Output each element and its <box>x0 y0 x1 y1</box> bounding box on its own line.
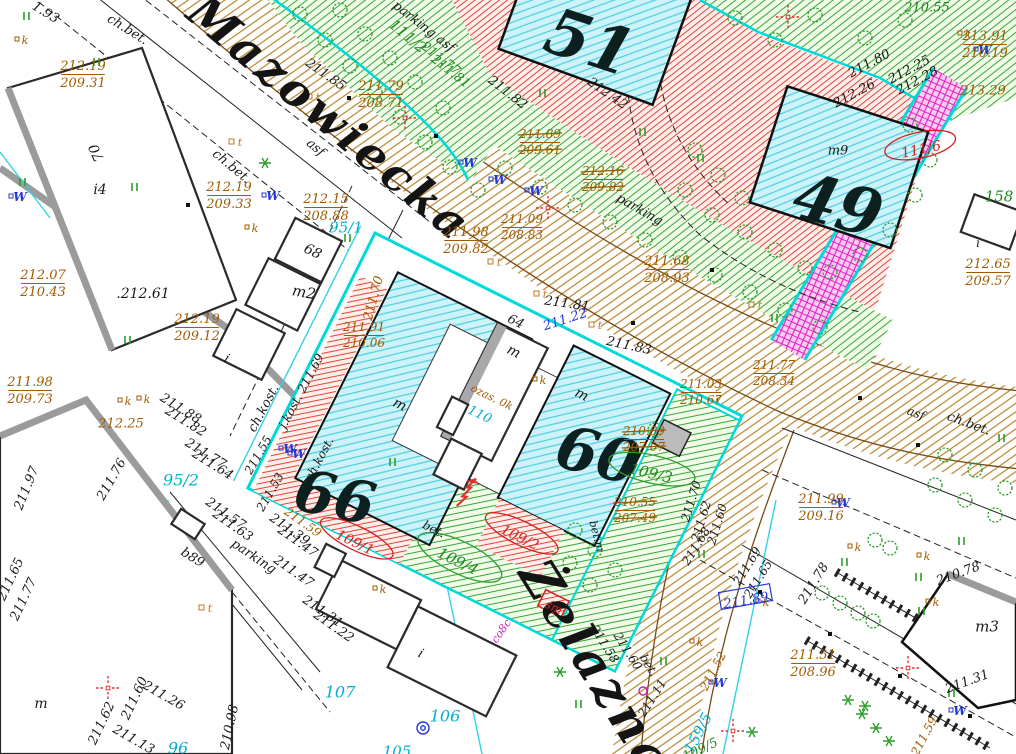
lamp-marker-icon: t <box>229 136 243 149</box>
lamp-marker-icon: t <box>488 256 502 269</box>
map-label: 212.65209.57 <box>964 257 1011 289</box>
svg-text:211.98: 211.98 <box>6 375 53 390</box>
map-label: m9 <box>828 144 849 159</box>
svg-text:213.29: 213.29 <box>959 84 1006 99</box>
survey-point <box>631 321 635 325</box>
map-label: 211.98209.73 <box>6 375 53 407</box>
svg-text:t: t <box>598 319 603 332</box>
svg-text:211.99: 211.99 <box>797 492 844 507</box>
svg-text:212.19: 212.19 <box>173 312 220 327</box>
svg-text:210.06: 210.06 <box>342 336 385 350</box>
map-label: 96 <box>168 739 188 754</box>
water-marker-icon: W <box>9 190 28 204</box>
svg-text:208.34: 208.34 <box>752 374 795 388</box>
svg-text:m9: m9 <box>828 144 849 159</box>
k-marker-icon: k <box>118 395 132 408</box>
svg-text:95/2: 95/2 <box>163 471 199 490</box>
svg-text:212.19: 212.19 <box>59 59 106 74</box>
survey-point <box>916 443 920 447</box>
svg-text:212.25: 212.25 <box>97 417 144 432</box>
map-label: 105 <box>383 742 412 754</box>
survey-point <box>968 714 972 718</box>
svg-text:208.96: 208.96 <box>789 665 836 680</box>
svg-text:k: k <box>252 222 259 235</box>
svg-text:W: W <box>493 173 508 187</box>
conifer-icon <box>842 695 854 705</box>
grass-icon <box>576 700 581 708</box>
tree-icon <box>928 478 942 492</box>
survey-point <box>434 134 438 138</box>
base-map: kkkkkkkkkkkktttttttWWWWWWWWWWW Mazowieck… <box>0 0 1016 754</box>
map-label: 211.03210.67 <box>679 377 722 407</box>
benchmark-icon <box>417 722 429 734</box>
svg-text:209.12: 209.12 <box>173 329 220 344</box>
map-label: 211.98209.82 <box>442 225 489 257</box>
map-label: i4 <box>93 182 106 198</box>
map-label: .212.61 <box>116 286 169 302</box>
map-label: 212.15208.88 <box>302 192 349 224</box>
map-label: 210.89207.07 <box>622 424 666 454</box>
svg-text:211.98: 211.98 <box>442 225 489 240</box>
svg-text:209.57: 209.57 <box>964 274 1011 289</box>
svg-text:W: W <box>266 189 281 203</box>
svg-text:211.68: 211.68 <box>643 254 690 269</box>
svg-text:211.59: 211.59 <box>908 714 941 754</box>
map-label: 107 <box>325 683 356 702</box>
map-label: 212.19209.31 <box>59 59 106 91</box>
svg-text:k: k <box>540 374 547 387</box>
svg-text:W: W <box>13 190 28 204</box>
map-label: co8c <box>489 617 515 646</box>
svg-text:210.67: 210.67 <box>679 393 722 407</box>
svg-text:.212.61: .212.61 <box>116 286 169 302</box>
k-marker-icon: k <box>137 393 151 406</box>
svg-text:210.19: 210.19 <box>961 46 1008 61</box>
svg-text:W: W <box>529 184 544 198</box>
survey-point <box>828 632 832 636</box>
conifer-icon <box>870 723 882 733</box>
map-label: 212.19209.33 <box>205 180 252 212</box>
svg-text:k: k <box>924 550 931 563</box>
svg-text:107: 107 <box>325 683 356 702</box>
map-label: 212.16209.82 <box>581 164 625 194</box>
conifer-icon <box>746 727 758 737</box>
k-marker-icon: k <box>848 541 862 554</box>
map-label: i <box>976 236 980 250</box>
tree-icon <box>851 606 865 620</box>
k-marker-icon: k <box>15 34 29 47</box>
svg-text:k: k <box>144 393 151 406</box>
svg-text:210.55: 210.55 <box>903 1 950 16</box>
map-label: 106 <box>430 707 461 726</box>
svg-text:208.93: 208.93 <box>643 271 690 286</box>
svg-text:209.33: 209.33 <box>205 197 252 212</box>
svg-text:t: t <box>758 299 763 312</box>
survey-point <box>710 268 714 272</box>
svg-text:105: 105 <box>383 742 412 754</box>
tree-icon <box>833 596 847 610</box>
svg-text:211.78: 211.78 <box>795 560 832 607</box>
svg-text:209.31: 209.31 <box>59 76 106 91</box>
tree-icon <box>868 533 882 547</box>
svg-text:k: k <box>380 583 387 596</box>
map-label: 212.19209.12 <box>173 312 220 344</box>
map-label: 211.51208.96 <box>789 648 836 680</box>
svg-text:W: W <box>463 156 478 170</box>
conifer-icon <box>883 736 895 746</box>
map-label: 158 <box>985 187 1014 205</box>
survey-cross-icon <box>721 719 745 743</box>
map-label: 211.59 <box>908 714 941 754</box>
survey-point <box>898 674 902 678</box>
svg-text:211.79: 211.79 <box>357 79 404 94</box>
svg-text:co8c: co8c <box>489 617 515 646</box>
water-marker-icon: W <box>262 189 281 203</box>
map-label: 212.25 <box>97 417 144 432</box>
tree-icon <box>998 481 1012 495</box>
svg-text:211.09: 211.09 <box>500 212 543 226</box>
svg-text:k: k <box>22 34 29 47</box>
svg-text:96: 96 <box>168 739 188 754</box>
svg-text:208.83: 208.83 <box>500 228 543 242</box>
conifer-icon <box>259 158 271 168</box>
svg-text:211.77: 211.77 <box>752 358 795 372</box>
svg-text:m3: m3 <box>975 617 999 635</box>
svg-text:t: t <box>238 136 243 149</box>
svg-text:k: k <box>855 541 862 554</box>
svg-text:W: W <box>953 704 968 718</box>
k-marker-icon: k <box>245 222 259 235</box>
svg-text:t: t <box>497 256 502 269</box>
svg-text:209.73: 209.73 <box>6 392 53 407</box>
map-label: 213.91210.19 <box>961 29 1008 61</box>
svg-text:k: k <box>125 395 132 408</box>
map-label: 210.55207.49 <box>613 495 657 525</box>
map-label: m <box>34 696 47 712</box>
map-label: 211.89209.61 <box>518 127 562 157</box>
map-label: m3 <box>975 617 999 635</box>
k-marker-icon: k <box>917 550 931 563</box>
svg-text:t: t <box>208 602 213 615</box>
map-label: 211.68208.93 <box>643 254 690 286</box>
svg-text:i4: i4 <box>93 182 106 198</box>
svg-text:212.07: 212.07 <box>19 268 66 283</box>
tree-icon <box>883 541 897 555</box>
map-label: ch.bet. <box>104 12 150 49</box>
grass-icon <box>842 558 847 566</box>
svg-text:158: 158 <box>985 187 1014 205</box>
svg-text:211.91: 211.91 <box>342 320 385 334</box>
grass-icon <box>24 12 29 20</box>
svg-text:k: k <box>933 596 940 609</box>
grass-icon <box>959 537 964 545</box>
svg-text:212.15: 212.15 <box>302 192 349 207</box>
map-label: 95/2 <box>163 471 199 490</box>
svg-text:211.51: 211.51 <box>789 648 836 663</box>
svg-text:213.91: 213.91 <box>961 29 1008 44</box>
svg-text:k: k <box>697 636 704 649</box>
svg-text:212.65: 212.65 <box>964 257 1011 272</box>
map-label: 211.09208.83 <box>500 212 543 242</box>
map-label: 211.79208.71 <box>357 79 404 111</box>
grass-icon <box>916 573 921 581</box>
svg-text:212.19: 212.19 <box>205 180 252 195</box>
map-label: 210.55 <box>903 1 950 16</box>
map-label: 1.93 <box>29 0 62 27</box>
svg-text:106: 106 <box>430 707 461 726</box>
svg-text:ch.bet.: ch.bet. <box>104 12 150 49</box>
svg-text:m: m <box>34 696 47 712</box>
survey-point <box>858 396 862 400</box>
map-label: 211.99209.16 <box>797 492 844 524</box>
svg-text:208.88: 208.88 <box>302 209 349 224</box>
svg-text:211.03: 211.03 <box>679 377 722 391</box>
svg-text:1.93: 1.93 <box>29 0 62 27</box>
survey-point <box>186 203 190 207</box>
map-label: 213.29 <box>959 84 1006 99</box>
svg-text:209.82: 209.82 <box>442 242 489 257</box>
tree-icon <box>988 508 1002 522</box>
map-label: 211.77208.34 <box>752 358 795 388</box>
water-marker-icon: W <box>949 704 968 718</box>
svg-text:210.43: 210.43 <box>19 285 66 300</box>
map-label: 211.78 <box>795 560 832 607</box>
cadastral-map-canvas[interactable]: kkkkkkkkkkkktttttttWWWWWWWWWWW Mazowieck… <box>0 0 1016 754</box>
svg-text:209.16: 209.16 <box>797 509 844 524</box>
svg-text:208.71: 208.71 <box>357 96 404 111</box>
svg-text:i: i <box>976 236 980 250</box>
map-label: 211.91210.06 <box>342 320 385 350</box>
map-label: 212.07210.43 <box>19 268 66 300</box>
